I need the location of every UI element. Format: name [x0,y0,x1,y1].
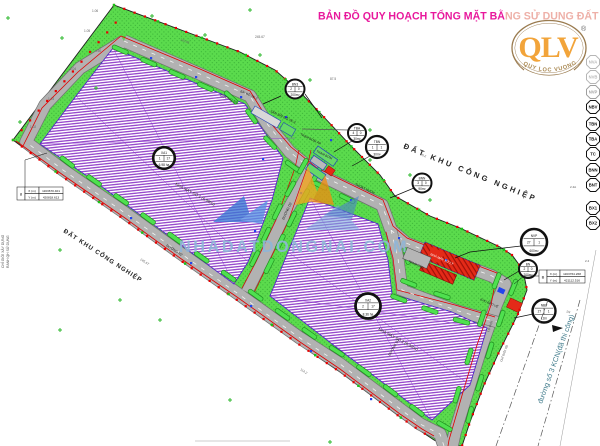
svg-text:BNN: BNN [419,176,426,180]
svg-text:87.5: 87.5 [330,77,336,81]
svg-text:XA2: XA2 [365,298,371,302]
svg-text:200m²: 200m² [290,93,299,97]
svg-text:1: 1 [372,145,374,149]
svg-text:X (m): X (m) [550,272,558,276]
svg-text:BX2: BX2 [589,221,598,226]
svg-text:1: 1 [548,309,550,313]
svg-text:0: 0 [531,267,533,271]
svg-text:1: 1 [159,156,161,160]
svg-text:TBN: TBN [589,122,598,127]
svg-text:1.02: 1.02 [30,125,36,129]
svg-text:BNN: BNN [588,168,597,173]
svg-text:420818.613: 420818.613 [43,196,60,200]
svg-text:NBV: NBV [541,304,548,308]
svg-text:RANH QH SỬ DỤNG: RANH QH SỬ DỤNG [5,235,10,268]
svg-text:8.36 ha: 8.36 ha [363,312,374,316]
svg-text:TBA: TBA [589,137,598,142]
svg-text:1: 1 [538,241,540,245]
svg-text:®: ® [581,25,587,33]
svg-text:17: 17 [371,305,375,309]
svg-text:0: 0 [360,131,362,135]
svg-text:90m²: 90m² [418,187,425,191]
svg-text:B: B [542,275,545,280]
svg-text:6.98 ha: 6.98 ha [159,163,170,167]
svg-text:2: 2 [524,267,526,271]
svg-text:NHADATDONGNAI.COM: NHADATDONGNAI.COM [179,238,409,256]
svg-text:1.04: 1.04 [70,67,76,71]
svg-text:TC: TC [590,152,596,157]
svg-text:QLV: QLV [518,31,579,64]
svg-text:27: 27 [538,309,542,313]
svg-text:4.50: 4.50 [95,49,101,53]
svg-text:NVP: NVP [589,90,598,95]
svg-text:1.05: 1.05 [84,29,90,33]
svg-text:2.4: 2.4 [585,259,590,263]
svg-text:X (m): X (m) [28,189,36,193]
svg-text:600m²: 600m² [529,249,538,253]
svg-text:NBV: NBV [589,105,598,110]
svg-text:421112.516: 421112.516 [564,279,580,283]
svg-text:BN: BN [526,263,531,267]
svg-text:4: 4 [353,131,355,135]
svg-text:30m²: 30m² [373,152,380,156]
svg-text:BX1: BX1 [589,206,598,211]
svg-text:1.03: 1.03 [48,97,54,101]
svg-text:Y (m): Y (m) [28,196,36,200]
svg-text:0: 0 [298,87,300,91]
svg-text:27: 27 [527,241,531,245]
svg-text:1163764.268: 1163764.268 [563,272,581,276]
svg-text:BNT: BNT [589,183,598,188]
svg-text:Y (m): Y (m) [550,279,558,283]
svg-text:30m²: 30m² [353,137,360,141]
svg-text:TBN: TBN [374,140,381,144]
svg-text:1163670.401: 1163670.401 [42,189,60,193]
svg-text:NVA: NVA [589,60,598,65]
svg-text:2: 2 [290,87,292,91]
svg-text:245.67: 245.67 [255,35,265,39]
svg-text:1: 1 [381,145,383,149]
svg-text:CHỈ GIỚI XÂY DỰNG: CHỈ GIỚI XÂY DỰNG [0,234,5,268]
svg-text:2.4A: 2.4A [570,185,576,189]
svg-text:2: 2 [362,305,364,309]
svg-text:BN3: BN3 [292,82,298,86]
svg-text:NVP: NVP [531,234,538,238]
svg-text:0: 0 [425,181,427,185]
svg-text:TBA: TBA [354,127,361,131]
svg-text:1.06: 1.06 [92,9,98,13]
svg-text:3: 3 [417,181,419,185]
svg-text:17: 17 [167,156,171,160]
svg-text:NVB: NVB [589,75,598,80]
svg-text:XA1: XA1 [161,151,167,155]
